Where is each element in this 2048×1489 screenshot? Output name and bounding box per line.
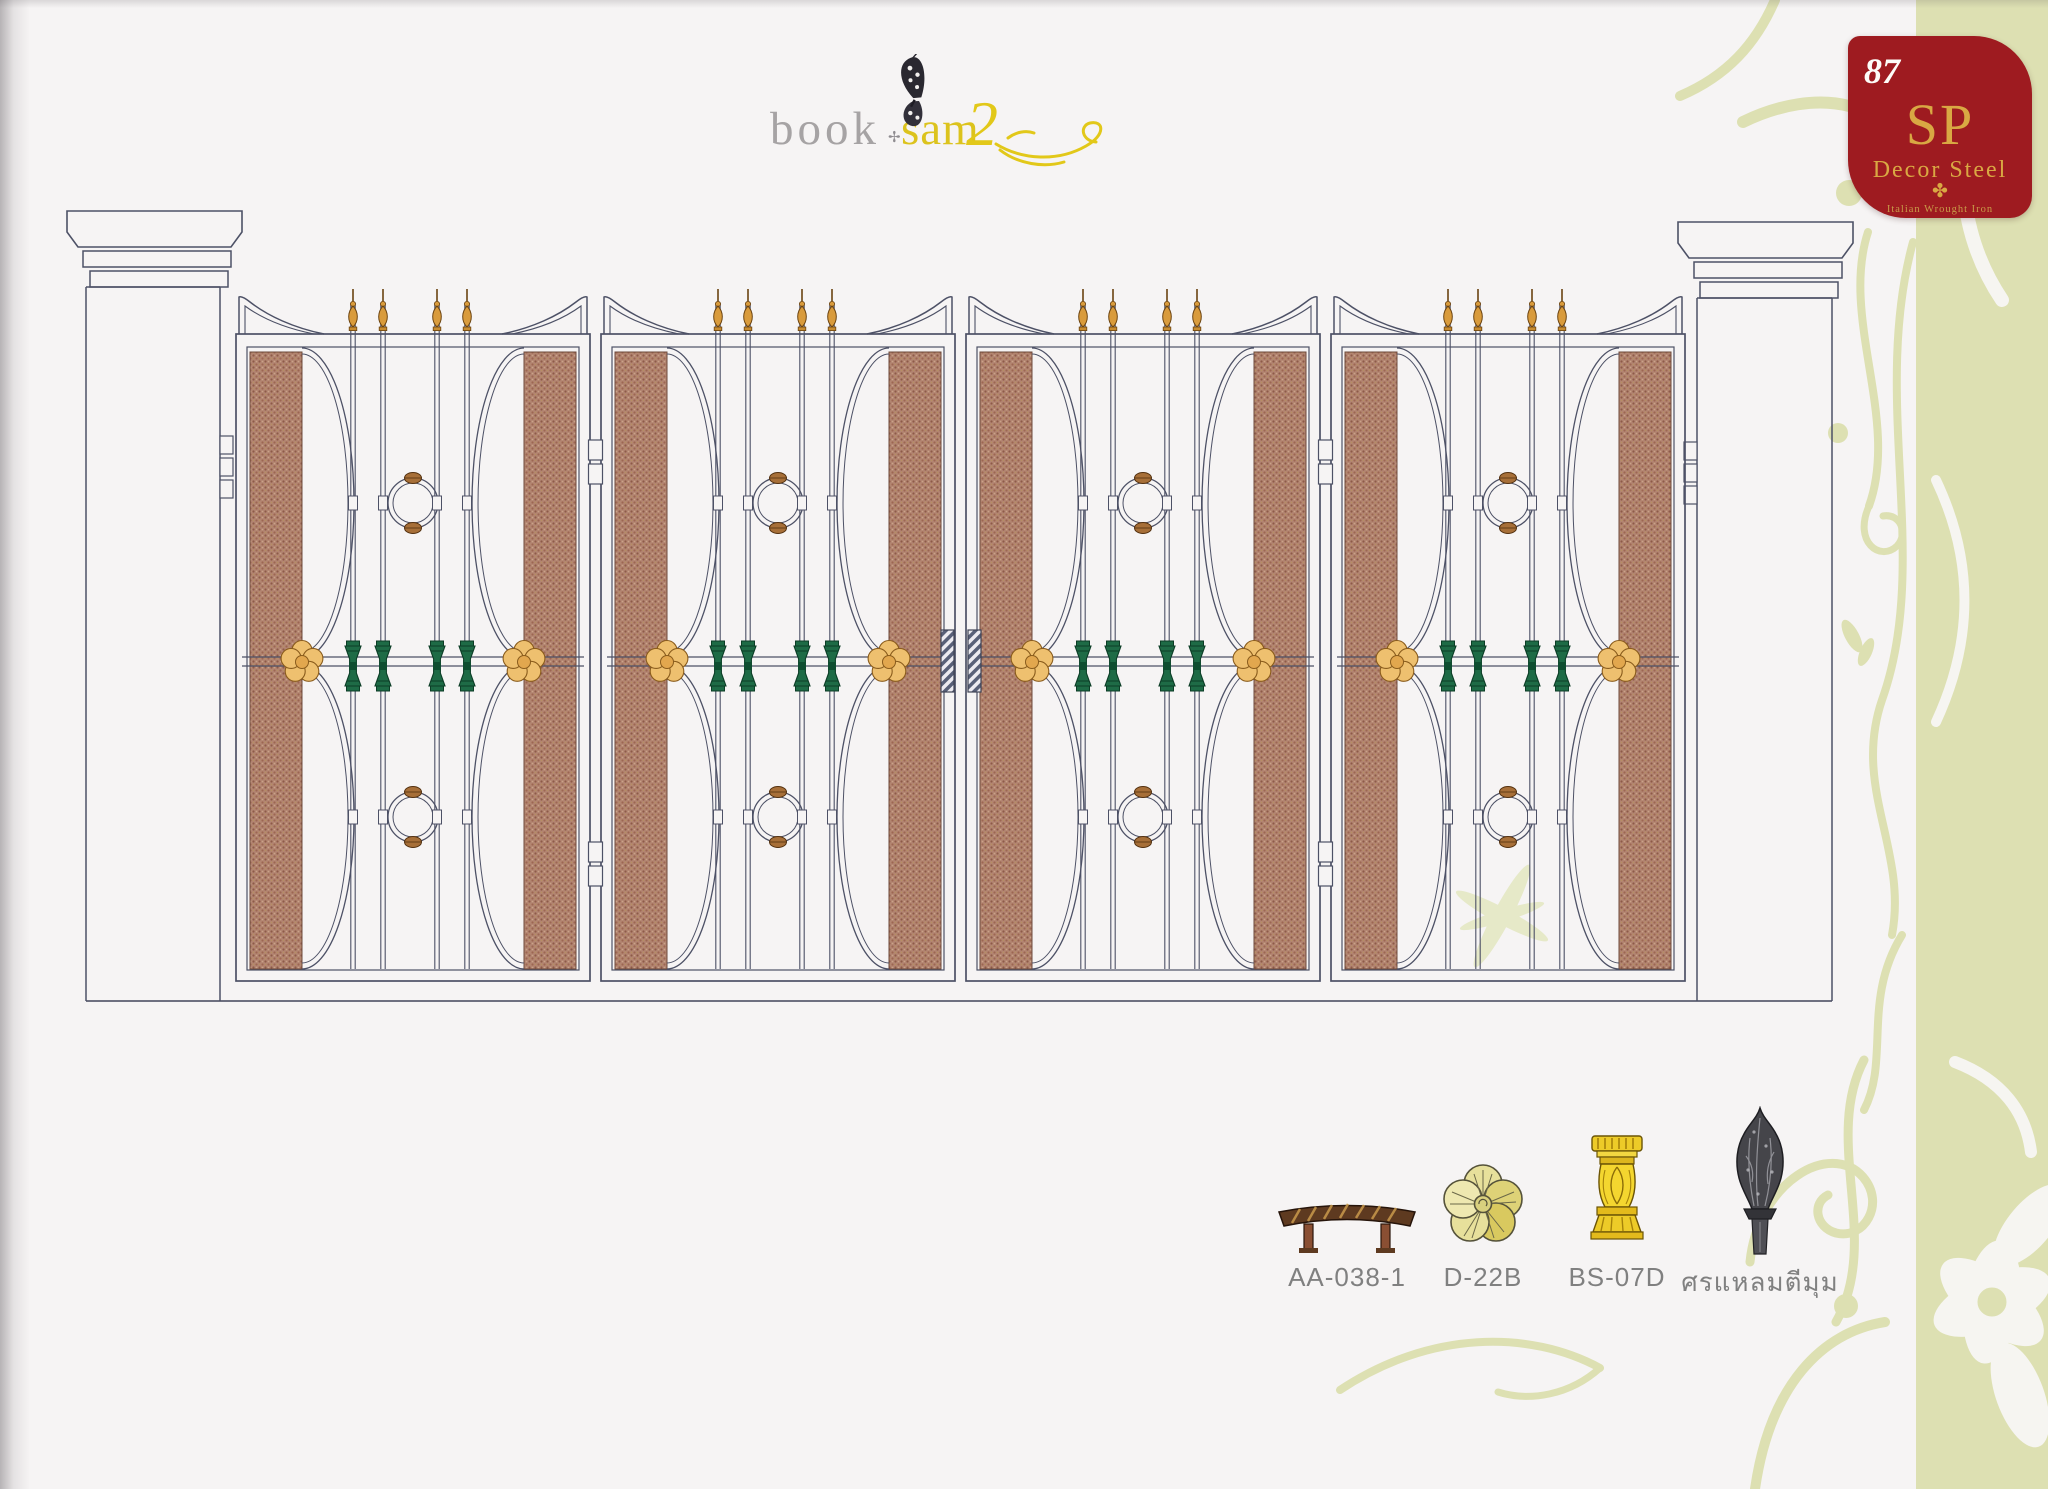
gate-leaf-2 bbox=[601, 289, 955, 981]
right-pillar bbox=[1678, 222, 1853, 1001]
gate-leaf-1 bbox=[236, 289, 590, 981]
spear-finial-icon bbox=[1724, 1106, 1796, 1258]
hinge-tab bbox=[589, 842, 603, 862]
hinge-tab bbox=[589, 866, 603, 886]
hinge-tab bbox=[1319, 842, 1333, 862]
legend-item: ศรแหลมตีมุม bbox=[1675, 1100, 1845, 1310]
center-latch bbox=[941, 630, 981, 692]
legend-code: ศรแหลมตีมุม bbox=[1675, 1262, 1845, 1303]
hinge-tab bbox=[589, 440, 603, 460]
gate-leaf-4 bbox=[1331, 289, 1685, 981]
baluster-collar-icon bbox=[1588, 1134, 1646, 1248]
left-pillar bbox=[67, 211, 242, 1001]
hinge-tab bbox=[1319, 464, 1333, 484]
hinge-tab bbox=[1319, 866, 1333, 886]
hinge-tab bbox=[1319, 440, 1333, 460]
catalog-page: book ✢ sam 2 bbox=[0, 0, 2048, 1489]
flower-rosette-icon bbox=[1436, 1158, 1530, 1252]
gate-leaf-3 bbox=[966, 289, 1320, 981]
hinge-tab bbox=[589, 464, 603, 484]
